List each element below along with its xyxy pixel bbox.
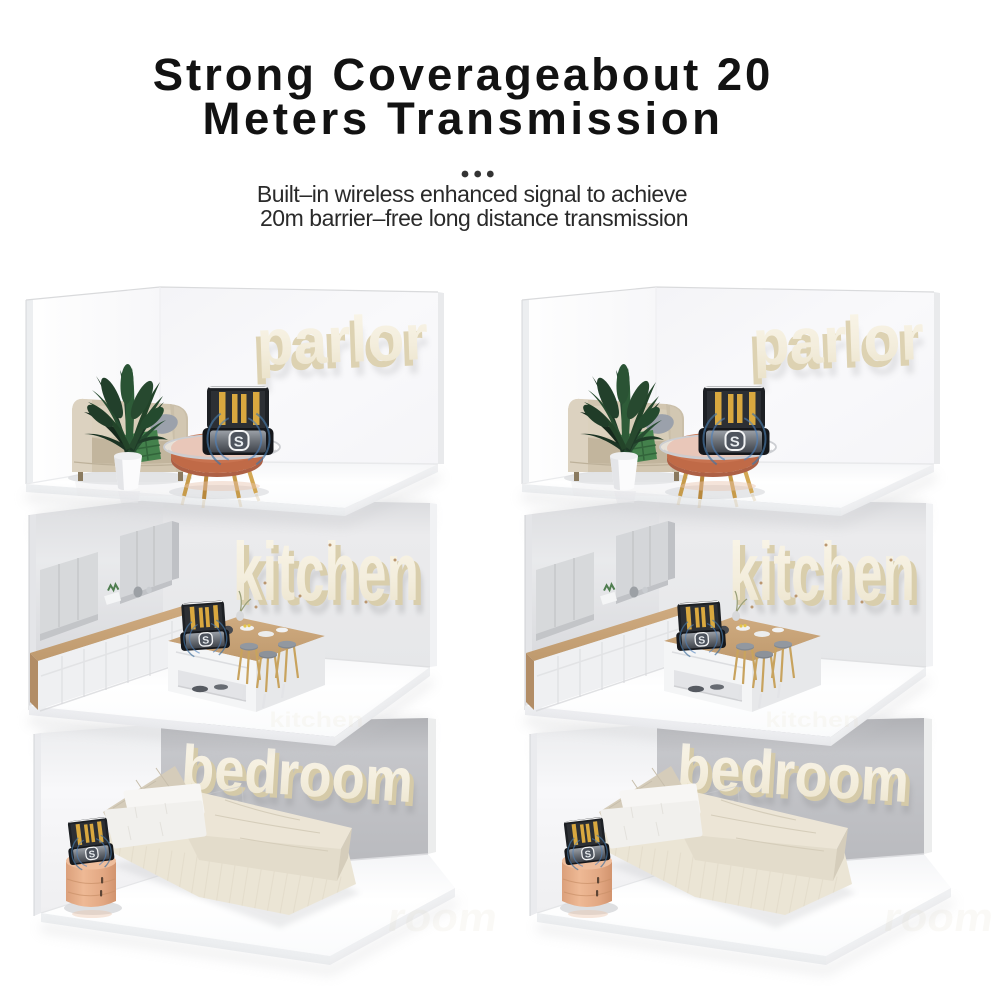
svg-text:Meters Transmission: Meters Transmission [202, 93, 723, 144]
svg-text:20m barrier–free long distance: 20m barrier–free long distance transmiss… [260, 205, 688, 231]
svg-text:Built–in wireless enhanced sig: Built–in wireless enhanced signal to ach… [257, 181, 687, 207]
